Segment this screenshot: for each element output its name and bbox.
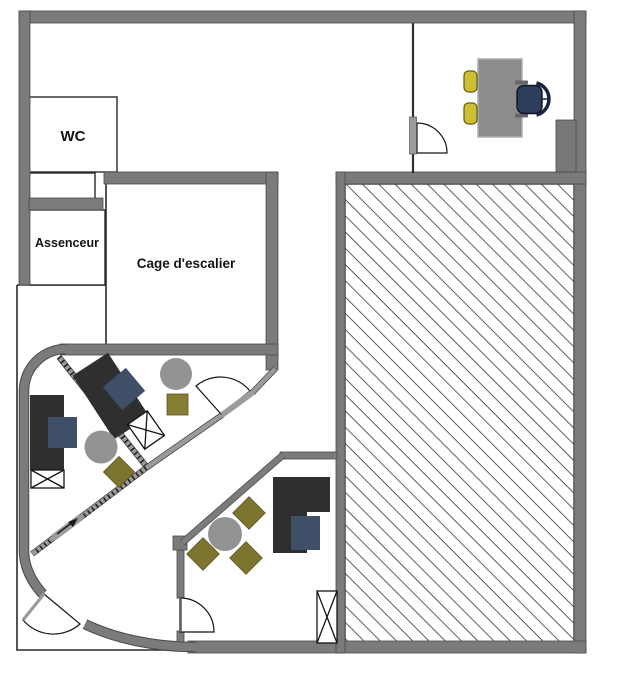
hatched-zone <box>345 184 574 642</box>
room-wc-annex <box>29 173 95 199</box>
round-table <box>160 358 192 390</box>
door-leaf-topright <box>410 117 417 154</box>
wall-hatched-top <box>336 172 586 184</box>
chair-seat <box>517 86 542 114</box>
floor-plan: WC Assenceur Cage d'escalier <box>0 0 627 687</box>
visitor-chair <box>464 71 477 92</box>
cabinet <box>556 120 576 172</box>
desk <box>478 59 522 137</box>
executive-chair <box>515 81 549 118</box>
left-office-furniture <box>30 353 192 488</box>
wall-hatched-left <box>336 172 345 653</box>
door-swing-topright <box>417 123 447 153</box>
wall-office2-left-upper <box>177 548 184 598</box>
olive-chair <box>167 394 188 415</box>
floor-plan-canvas: WC Assenceur Cage d'escalier <box>0 0 627 687</box>
door-swing-office2 <box>180 598 214 632</box>
room-label-wc: WC <box>61 128 86 145</box>
wall-office2-top <box>280 452 337 459</box>
diagonal-wall-b1 <box>252 369 275 393</box>
topright-office-furniture <box>464 59 576 172</box>
door-swing-corridor <box>196 377 250 414</box>
wall-elevator-top <box>29 198 103 210</box>
wall-left-upper <box>19 11 30 285</box>
round-table <box>85 431 118 464</box>
desk-chair-blue <box>48 417 77 448</box>
wall-right <box>574 11 586 653</box>
room-label-stairwell: Cage d'escalier <box>137 256 236 271</box>
wall-stairwell-top <box>104 172 278 184</box>
desk-chair-blue <box>291 516 320 550</box>
room-label-elevator: Assenceur <box>35 236 99 250</box>
room-boxes <box>29 97 117 285</box>
crossed-box <box>317 591 337 643</box>
wall-bottom <box>188 641 586 653</box>
wall-stairwell-right <box>266 172 278 370</box>
round-table <box>208 517 242 551</box>
crossed-box <box>31 470 64 488</box>
direction-arrow-icon <box>57 518 78 534</box>
wall-stairwell-bottom <box>60 344 278 355</box>
wall-top <box>19 11 586 23</box>
visitor-chair <box>464 103 477 124</box>
chair-armrest <box>515 81 528 85</box>
